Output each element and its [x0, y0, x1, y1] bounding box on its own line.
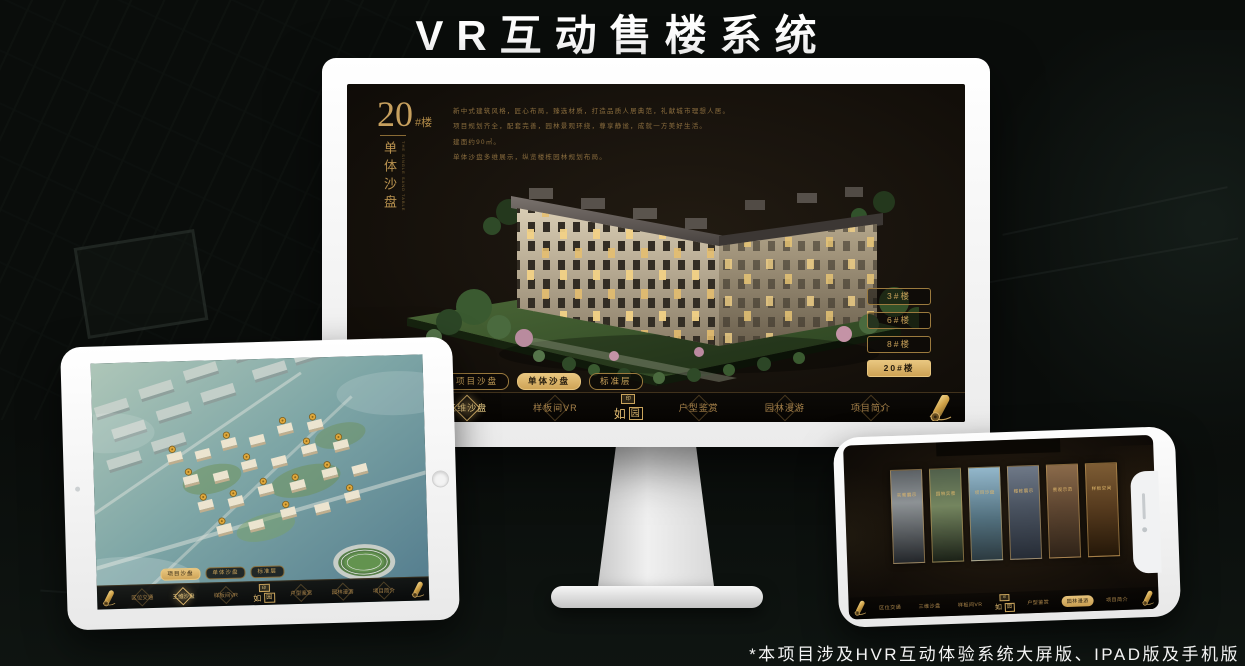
logo-main: 如	[253, 592, 262, 603]
floor-suffix: #楼	[415, 114, 432, 130]
scene-panel-label: 园林实景	[936, 491, 956, 498]
building-model-render[interactable]	[389, 142, 919, 387]
scene-panel[interactable]: 项目沙盘	[968, 466, 1003, 561]
nav-item-unit-plans[interactable]: 户型鉴赏	[1022, 596, 1054, 608]
logo-seal-char: 园	[264, 593, 275, 603]
logo-main: 如	[995, 602, 1003, 612]
interior-backdrop	[936, 438, 1060, 456]
scene-panel-gallery: 实景展示 园林实景 项目沙盘 楼栋展示 景观示范 样板空间	[890, 462, 1120, 564]
phone-camera-icon	[1142, 527, 1147, 532]
phone-device: 实景展示 园林实景 项目沙盘 楼栋展示 景观示范 样板空间 区位交通 三维沙盘 …	[833, 426, 1181, 628]
gold-divider	[380, 135, 406, 136]
tab-single-sandtable[interactable]: 单体沙盘	[517, 373, 581, 390]
nav-item-3d-sandtable[interactable]: 三维沙盘	[168, 590, 198, 601]
brand-logo: 印 如 园	[614, 394, 643, 422]
description-line: 新中式建筑风格，匠心布局，臻选材质，打造品质人居典范，礼献城市理想人居。	[453, 104, 899, 119]
scroll-menu-icon[interactable]	[852, 599, 867, 617]
nav-item-project-intro[interactable]: 项目简介	[1101, 593, 1133, 605]
nav-item-unit-plans[interactable]: 户型鉴赏	[286, 587, 316, 598]
scene-panel-label: 实景展示	[897, 492, 917, 499]
phone-screen: 实景展示 园林实景 项目沙盘 楼栋展示 景观示范 样板空间 区位交通 三维沙盘 …	[843, 435, 1159, 620]
scene-panel-label: 楼栋展示	[1014, 488, 1034, 495]
scene-panel[interactable]: 楼栋展示	[1007, 465, 1042, 560]
nav-item-garden-tour[interactable]: 园林漫游	[327, 586, 357, 597]
logo-seal-char: 园	[629, 407, 643, 420]
tablet-screen: 项目沙盘 单体沙盘 标准层 区位交通 三维沙盘 样板间VR 印 如 园 户型鉴赏…	[91, 354, 430, 609]
nav-item-showroom-vr[interactable]: 样板间VR	[210, 589, 242, 600]
scene-panel[interactable]: 园林实景	[929, 468, 964, 563]
tablet-device: 项目沙盘 单体沙盘 标准层 区位交通 三维沙盘 样板间VR 印 如 园 户型鉴赏…	[60, 337, 460, 631]
nav-item-showroom-vr[interactable]: 样板间VR	[953, 598, 988, 610]
view-tab-group: 项目沙盘 单体沙盘 标准层	[445, 373, 643, 390]
floor-button-3[interactable]: 3#楼	[867, 288, 931, 305]
nav-item-location[interactable]: 区位交通	[874, 601, 906, 613]
scene-panel[interactable]: 样板空间	[1085, 462, 1120, 557]
floor-number: 20	[377, 96, 413, 132]
tablet-camera-icon	[75, 486, 80, 491]
tablet-tab-project-sandtable[interactable]: 项目沙盘	[160, 568, 200, 581]
page-title: VR互动售楼系统	[0, 2, 1245, 63]
logo-main: 如	[614, 405, 627, 422]
nav-item-showroom-vr[interactable]: 样板间VR	[523, 399, 588, 416]
tablet-home-button[interactable]	[432, 470, 449, 487]
logo-seal-icon: 印	[258, 583, 269, 591]
nav-item-location[interactable]: 区位交通	[127, 591, 157, 602]
nav-item-project-intro[interactable]: 项目简介	[369, 585, 399, 596]
brand-logo: 印 如 园	[995, 594, 1016, 613]
nav-item-garden-tour[interactable]: 园林漫游	[755, 399, 815, 416]
scroll-menu-icon[interactable]	[410, 579, 426, 599]
nav-item-garden-tour[interactable]: 园林漫游	[1061, 595, 1093, 607]
logo-seal-icon: 印	[1000, 594, 1010, 601]
scroll-menu-icon[interactable]	[1140, 589, 1155, 607]
background-plaque	[74, 229, 209, 339]
phone-notch	[1130, 471, 1162, 574]
tab-project-sandtable[interactable]: 项目沙盘	[445, 373, 509, 390]
nav-item-unit-plans[interactable]: 户型鉴赏	[669, 399, 729, 416]
scene-panel[interactable]: 景观示范	[1046, 463, 1081, 558]
floor-button-6[interactable]: 6#楼	[867, 312, 931, 329]
logo-seal-icon: 印	[621, 394, 635, 404]
logo-seal-char: 园	[1005, 602, 1015, 611]
scene-panel-label: 项目沙盘	[975, 489, 995, 496]
scroll-menu-icon[interactable]	[101, 588, 117, 608]
tablet-tab-single-sandtable[interactable]: 单体沙盘	[205, 566, 245, 579]
nav-item-project-intro[interactable]: 项目简介	[841, 399, 901, 416]
monitor-stand-base	[551, 586, 763, 608]
footnote-caption: *本项目涉及HVR互动体验系统大屏版、IPAD版及手机版	[749, 640, 1240, 665]
phone-speaker-icon	[1142, 493, 1146, 519]
scroll-menu-icon[interactable]	[927, 395, 953, 421]
scene-panel-label: 样板空间	[1092, 485, 1112, 492]
floor-button-group: 3#楼 6#楼 8#楼 20#楼	[867, 288, 931, 377]
brand-logo: 印 如 园	[253, 583, 276, 604]
scene-panel[interactable]: 实景展示	[890, 469, 925, 564]
description-line: 项目规划齐全，配套完善，园林景观环绕，尊享静谧，成就一方美好生活。	[453, 119, 899, 134]
floor-button-20[interactable]: 20#楼	[867, 360, 931, 377]
tab-standard-floor[interactable]: 标准层	[589, 373, 643, 390]
scene-panel-label: 景观示范	[1053, 487, 1073, 494]
nav-item-3d-sandtable[interactable]: 三维沙盘	[913, 600, 945, 612]
floor-button-8[interactable]: 8#楼	[867, 336, 931, 353]
tablet-tab-standard-floor[interactable]: 标准层	[250, 565, 284, 578]
